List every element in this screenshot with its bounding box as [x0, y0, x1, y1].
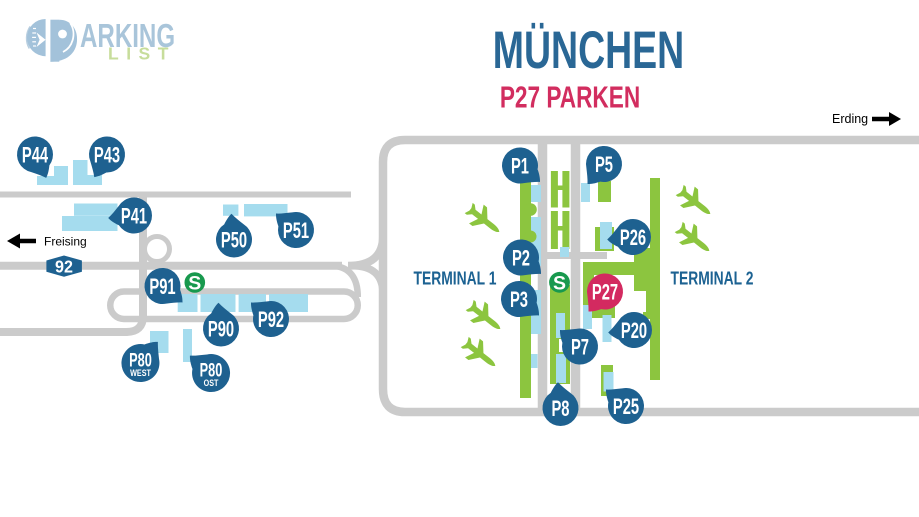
svg-text:TERMINAL 2: TERMINAL 2 — [671, 269, 754, 289]
svg-text:P5: P5 — [595, 152, 613, 177]
svg-text:S: S — [188, 273, 201, 295]
svg-text:P27 PARKEN: P27 PARKEN — [500, 79, 640, 114]
svg-text:P3: P3 — [510, 287, 528, 312]
svg-text:P91: P91 — [149, 274, 175, 299]
svg-text:P27: P27 — [592, 280, 618, 305]
svg-text:OST: OST — [204, 378, 219, 388]
svg-text:P2: P2 — [512, 246, 530, 271]
svg-text:TERMINAL 1: TERMINAL 1 — [414, 269, 497, 289]
svg-text:P41: P41 — [121, 204, 147, 229]
svg-text:S: S — [553, 272, 566, 294]
svg-text:P26: P26 — [620, 225, 646, 250]
svg-text:P51: P51 — [283, 218, 309, 243]
svg-text:Freising: Freising — [44, 235, 87, 249]
svg-text:P90: P90 — [208, 317, 234, 342]
svg-text:P50: P50 — [221, 228, 247, 253]
svg-text:P44: P44 — [22, 143, 49, 168]
svg-text:P7: P7 — [571, 335, 589, 360]
svg-text:P43: P43 — [94, 143, 120, 168]
svg-text:P1: P1 — [511, 154, 529, 179]
svg-text:LIST: LIST — [108, 44, 176, 64]
svg-text:P92: P92 — [258, 307, 284, 332]
svg-text:WEST: WEST — [130, 368, 151, 378]
svg-text:Erding: Erding — [832, 112, 868, 126]
svg-text:92: 92 — [55, 257, 73, 277]
svg-text:MÜNCHEN: MÜNCHEN — [493, 20, 684, 80]
svg-text:P25: P25 — [613, 394, 639, 419]
svg-text:P8: P8 — [551, 396, 569, 421]
svg-text:P20: P20 — [621, 318, 647, 343]
